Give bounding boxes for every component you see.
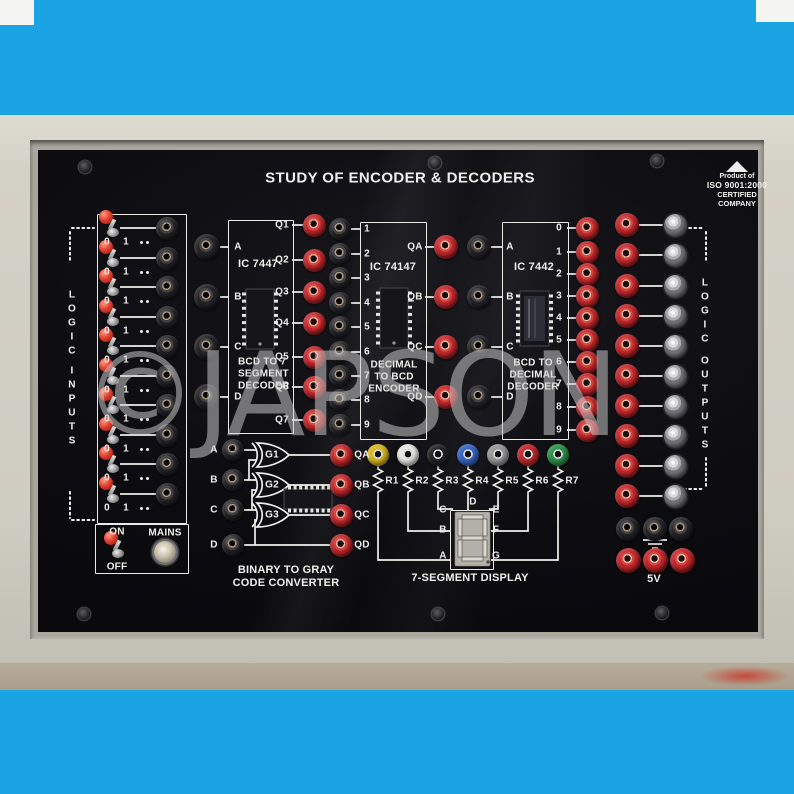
xor-gate-label: G2 — [265, 480, 279, 491]
ic74147-input-socket-3[interactable] — [329, 292, 351, 314]
logic-output-led-2 — [664, 275, 687, 298]
segment-label-f: F — [493, 525, 499, 536]
logic-input-toggle-9[interactable] — [99, 479, 125, 506]
power-toggle[interactable] — [104, 534, 130, 561]
panel-screw — [78, 608, 90, 620]
supply-5v-socket-1[interactable] — [643, 548, 668, 573]
ic7447-output-label: Q5 — [275, 352, 289, 363]
logic-outputs-label-letter: O — [701, 292, 709, 303]
ic7442-output-label: 9 — [556, 425, 562, 436]
logic-input-socket-9[interactable] — [156, 483, 179, 506]
ic7447-input-socket-1[interactable] — [194, 284, 220, 310]
logic-input-toggle-2[interactable] — [99, 272, 125, 299]
display-box — [450, 510, 494, 570]
xor-gate-label: G1 — [265, 450, 279, 461]
logic-input-toggle-0[interactable] — [99, 213, 125, 240]
ic7442-output-socket-3[interactable] — [576, 285, 599, 308]
logic-input-toggle-7[interactable] — [99, 420, 125, 447]
switch-zero-label: 0 — [104, 296, 110, 307]
supply-5v-socket-0[interactable] — [616, 548, 641, 573]
logic-outputs-label-letter: I — [704, 320, 707, 331]
logic-output-led-5 — [664, 365, 687, 388]
logic-outputs-label-letter: C — [701, 334, 708, 345]
ic7442-output-socket-1[interactable] — [576, 241, 599, 264]
logic-input-toggle-6[interactable] — [99, 390, 125, 417]
ic7442-input-label: A — [506, 242, 513, 253]
switch-one-label: 1 — [123, 355, 129, 366]
logic-output-socket-6[interactable] — [615, 394, 639, 418]
panel-screw — [656, 607, 668, 619]
logic-inputs-label-letter: L — [69, 290, 75, 301]
ic7442-output-label: 0 — [556, 223, 562, 234]
switch-zero-label: 0 — [104, 237, 110, 248]
logic-input-socket-8[interactable] — [156, 453, 179, 476]
photo-corner — [756, 0, 794, 22]
ic7442-input-socket-1[interactable] — [467, 285, 491, 309]
switch-zero-label: 0 — [104, 385, 110, 396]
ic74147-output-label: QC — [407, 342, 422, 353]
ic7447-output-label: Q6 — [275, 382, 289, 393]
binary-gray-input-label: B — [210, 475, 217, 486]
binary-gray-output-socket-1[interactable] — [330, 474, 353, 497]
switch-zero-label: 0 — [104, 414, 110, 425]
ic7442-output-label: 4 — [556, 313, 562, 324]
logic-input-socket-0[interactable] — [156, 217, 179, 240]
power-on-label: ON — [109, 527, 124, 538]
ic7442-input-socket-3[interactable] — [467, 385, 491, 409]
ic7447-input-socket-3[interactable] — [194, 384, 220, 410]
ic7442-output-socket-2[interactable] — [576, 263, 599, 286]
marker-dot — [140, 477, 143, 480]
logic-output-socket-3[interactable] — [615, 304, 639, 328]
badge-line2: ISO 9001:2000 — [700, 180, 774, 190]
ic74147-desc-1: DECIMAL — [371, 360, 418, 371]
segment-label-e: E — [493, 505, 500, 516]
marker-dot — [146, 271, 149, 274]
logic-input-toggle-5[interactable] — [99, 361, 125, 388]
marker-dot — [140, 418, 143, 421]
logic-outputs-label-letter: P — [702, 398, 709, 409]
resistor-label: R5 — [505, 476, 518, 487]
ic7447-output-label: Q2 — [275, 255, 289, 266]
logic-inputs-label-letter: T — [69, 422, 75, 433]
logic-outputs-label-letter: O — [701, 356, 709, 367]
logic-input-socket-2[interactable] — [156, 276, 179, 299]
badge-line1: Product of — [700, 173, 774, 180]
ic74147-input-socket-8[interactable] — [329, 414, 351, 436]
switch-zero-label: 0 — [104, 444, 110, 455]
ic7442-input-label: B — [506, 292, 513, 303]
logic-output-socket-1[interactable] — [615, 243, 639, 267]
marker-dot — [140, 507, 143, 510]
segment-label-c: C — [439, 505, 446, 516]
ic7442-output-socket-9[interactable] — [576, 419, 599, 442]
ic7447-input-label: C — [234, 342, 241, 353]
ic7447-input-label: B — [234, 292, 241, 303]
binary-gray-output-label: QB — [354, 480, 369, 491]
segment-label-d: D — [469, 497, 476, 508]
ic7442-output-label: 7 — [556, 379, 562, 390]
ic7442-output-label: 8 — [556, 402, 562, 413]
logic-outputs-label-letter: U — [701, 370, 708, 381]
mains-indicator — [154, 541, 176, 563]
logic-inputs-label-letter: I — [71, 366, 74, 377]
ic74147-input-label: 5 — [364, 322, 370, 333]
logic-output-led-6 — [664, 395, 687, 418]
supply-5v-label: 5V — [647, 573, 661, 585]
background-reflection — [700, 666, 790, 686]
binary-gray-input-socket-1[interactable] — [222, 469, 244, 491]
logic-inputs-label-letter: I — [71, 332, 74, 343]
ic7442-output-label: 1 — [556, 247, 562, 258]
ic7442-output-socket-8[interactable] — [576, 396, 599, 419]
logic-inputs-label-letter: N — [68, 380, 75, 391]
binary-gray-input-label: A — [210, 445, 217, 456]
ic74147-input-socket-5[interactable] — [329, 341, 351, 363]
ic74147-input-label: 8 — [364, 395, 370, 406]
ic7442-input-label: D — [506, 392, 513, 403]
logic-inputs-label-letter: O — [68, 304, 76, 315]
segment-label-b: B — [439, 525, 446, 536]
ic7447-output-socket-0[interactable] — [303, 214, 326, 237]
ic7442-output-label: 5 — [556, 335, 562, 346]
ic7442-desc-1: BCD TO — [513, 358, 552, 369]
binary-gray-output-label: QC — [354, 510, 369, 521]
switch-one-label: 1 — [123, 503, 129, 514]
ic7442-output-socket-7[interactable] — [576, 373, 599, 396]
switch-one-label: 1 — [123, 237, 129, 248]
marker-dot — [140, 389, 143, 392]
logic-outputs-label-letter: T — [702, 426, 708, 437]
ic74147-output-label: QD — [407, 392, 422, 403]
binary-gray-output-label: QA — [354, 450, 369, 461]
logic-outputs-label-letter: S — [702, 440, 709, 451]
binary-gray-title-2: CODE CONVERTER — [233, 577, 340, 589]
resistor-label: R3 — [445, 476, 458, 487]
photo-corner — [0, 0, 34, 25]
logic-output-led-8 — [664, 455, 687, 478]
ic7447-output-socket-3[interactable] — [303, 312, 326, 335]
ic7447-output-label: Q4 — [275, 318, 289, 329]
ic74147-desc-2: TO BCD — [374, 372, 413, 383]
trainer-board-photo: STUDY OF ENCODER & DECODERS Product of I… — [0, 0, 794, 794]
ic7442-output-label: 2 — [556, 269, 562, 280]
panel-screw — [79, 161, 91, 173]
mains-label: MAINS — [148, 528, 181, 539]
page-title: STUDY OF ENCODER & DECODERS — [265, 170, 535, 187]
marker-dot — [146, 418, 149, 421]
logic-outputs-label-letter: T — [702, 384, 708, 395]
logic-output-socket-7[interactable] — [615, 424, 639, 448]
ic74147-input-label: 6 — [364, 347, 370, 358]
seg-socket-R5[interactable] — [487, 444, 509, 466]
ic74147-input-socket-6[interactable] — [329, 365, 351, 387]
ic7442-desc-3: DECODER — [507, 382, 558, 393]
marker-dot — [146, 300, 149, 303]
logic-input-toggle-1[interactable] — [99, 243, 125, 270]
ic7442-output-label: 6 — [556, 357, 562, 368]
binary-gray-input-label: C — [210, 505, 217, 516]
logic-outputs-label-letter: L — [702, 278, 708, 289]
ic74147-name: IC 74147 — [370, 261, 416, 273]
resistor-label: R4 — [475, 476, 488, 487]
ic7442-output-socket-0[interactable] — [576, 217, 599, 240]
marker-dot — [140, 241, 143, 244]
ic74147-output-label: QB — [407, 292, 422, 303]
ic74147-input-label: 4 — [364, 298, 370, 309]
logic-input-socket-5[interactable] — [156, 365, 179, 388]
logic-inputs-label-letter: U — [68, 408, 75, 419]
ic7447-input-socket-2[interactable] — [194, 334, 220, 360]
resistor-label: R1 — [385, 476, 398, 487]
logic-output-socket-5[interactable] — [615, 364, 639, 388]
binary-gray-output-socket-3[interactable] — [330, 534, 353, 557]
logic-input-toggle-8[interactable] — [99, 449, 125, 476]
marker-dot — [146, 359, 149, 362]
ic7447-output-socket-6[interactable] — [303, 409, 326, 432]
iso-badge: Product of ISO 9001:2000 CERTIFIED COMPA… — [700, 161, 774, 208]
toggle-ball — [99, 210, 113, 224]
marker-dot — [140, 359, 143, 362]
marker-dot — [140, 271, 143, 274]
logic-output-led-7 — [664, 425, 687, 448]
ic74147-input-label: 3 — [364, 273, 370, 284]
ic74147-input-label: 9 — [364, 420, 370, 431]
ic74147-output-socket-0[interactable] — [434, 235, 458, 259]
logic-inputs-label-letter: P — [69, 394, 76, 405]
binary-gray-output-socket-2[interactable] — [330, 504, 353, 527]
ic7442-input-socket-0[interactable] — [467, 235, 491, 259]
ic74147-input-label: 2 — [364, 249, 370, 260]
switch-one-label: 1 — [123, 473, 129, 484]
logic-output-socket-4[interactable] — [615, 334, 639, 358]
logic-input-socket-4[interactable] — [156, 335, 179, 358]
ic74147-input-label: 1 — [364, 224, 370, 235]
ic7447-output-socket-2[interactable] — [303, 281, 326, 304]
logic-output-socket-0[interactable] — [615, 213, 639, 237]
marker-dot — [146, 389, 149, 392]
table-surface — [0, 663, 794, 690]
switch-one-label: 1 — [123, 267, 129, 278]
seg-socket-R1[interactable] — [367, 444, 389, 466]
switch-one-label: 1 — [123, 385, 129, 396]
ic7442-output-socket-6[interactable] — [576, 351, 599, 374]
binary-gray-input-socket-3[interactable] — [222, 534, 244, 556]
ic74147-input-label: 7 — [364, 371, 370, 382]
marker-dot — [140, 330, 143, 333]
panel-screw — [432, 608, 444, 620]
ic7442-input-label: C — [506, 342, 513, 353]
badge-line3: CERTIFIED COMPANY — [700, 190, 774, 208]
marker-dot — [140, 448, 143, 451]
ic74147-input-socket-4[interactable] — [329, 316, 351, 338]
logic-inputs-label-letter: S — [69, 436, 76, 447]
marker-dot — [146, 477, 149, 480]
ground-socket-0[interactable] — [616, 517, 640, 541]
binary-gray-input-socket-2[interactable] — [222, 499, 244, 521]
seven-segment-title: 7-SEGMENT DISPLAY — [411, 572, 528, 584]
logic-input-toggle-4[interactable] — [99, 331, 125, 358]
ic7442-desc-2: DECIMAL — [510, 370, 557, 381]
resistor-label: R7 — [565, 476, 578, 487]
logic-input-socket-6[interactable] — [156, 394, 179, 417]
ic74147-output-socket-1[interactable] — [434, 285, 458, 309]
logic-input-socket-7[interactable] — [156, 424, 179, 447]
xor-gate-label: G3 — [265, 510, 279, 521]
binary-gray-title-1: BINARY TO GRAY — [238, 564, 334, 576]
ic7447-output-label: Q1 — [275, 220, 289, 231]
logic-output-led-1 — [664, 244, 687, 267]
ic7447-output-socket-5[interactable] — [303, 376, 326, 399]
logic-outputs-label-letter: G — [701, 306, 709, 317]
switch-one-label: 1 — [123, 414, 129, 425]
binary-gray-output-socket-0[interactable] — [330, 444, 353, 467]
ic7447-output-label: Q7 — [275, 415, 289, 426]
switch-zero-label: 0 — [104, 503, 110, 514]
ground-socket-2[interactable] — [669, 517, 693, 541]
marker-dot — [146, 241, 149, 244]
panel-screw — [651, 155, 663, 167]
seg-socket-R7[interactable] — [547, 444, 569, 466]
ic7447-input-label: D — [234, 392, 241, 403]
power-off-label: OFF — [107, 562, 128, 573]
logic-input-socket-1[interactable] — [156, 247, 179, 270]
marker-dot — [140, 300, 143, 303]
ic7447-input-label: A — [234, 242, 241, 253]
ic7442-output-socket-5[interactable] — [576, 329, 599, 352]
ic7442-input-socket-2[interactable] — [467, 335, 491, 359]
switch-zero-label: 0 — [104, 355, 110, 366]
switch-zero-label: 0 — [104, 473, 110, 484]
switch-zero-label: 0 — [104, 267, 110, 278]
marker-dot — [146, 448, 149, 451]
ic7447-input-socket-0[interactable] — [194, 234, 220, 260]
ground-socket-1[interactable] — [643, 517, 667, 541]
toggle-base — [112, 549, 124, 558]
logic-inputs-label-letter: C — [68, 346, 75, 357]
seg-socket-R2[interactable] — [397, 444, 419, 466]
seg-socket-R4[interactable] — [457, 444, 479, 466]
binary-gray-output-label: QD — [354, 540, 369, 551]
supply-5v-socket-2[interactable] — [670, 548, 695, 573]
segment-label-g: G — [492, 551, 500, 562]
logic-output-led-0 — [664, 214, 687, 237]
ic7447-output-label: Q3 — [275, 287, 289, 298]
binary-gray-input-label: D — [210, 540, 217, 551]
ic74147-input-socket-2[interactable] — [329, 267, 351, 289]
ic74147-input-socket-7[interactable] — [329, 389, 351, 411]
switch-one-label: 1 — [123, 296, 129, 307]
logic-input-toggle-3[interactable] — [99, 302, 125, 329]
logic-inputs-label-letter: G — [68, 318, 76, 329]
marker-dot — [146, 330, 149, 333]
switch-one-label: 1 — [123, 326, 129, 337]
logic-output-led-3 — [664, 305, 687, 328]
ic74147-output-label: QA — [407, 242, 422, 253]
logic-output-socket-9[interactable] — [615, 484, 639, 508]
switch-zero-label: 0 — [104, 326, 110, 337]
marker-dot — [146, 507, 149, 510]
logic-outputs-label-letter: U — [701, 412, 708, 423]
segment-label-a: A — [439, 551, 446, 562]
ic7442-name: IC 7442 — [514, 261, 554, 273]
logic-output-socket-2[interactable] — [615, 274, 639, 298]
logic-output-socket-8[interactable] — [615, 454, 639, 478]
switch-one-label: 1 — [123, 444, 129, 455]
ic74147-output-socket-2[interactable] — [434, 335, 458, 359]
resistor-label: R6 — [535, 476, 548, 487]
logic-input-socket-3[interactable] — [156, 306, 179, 329]
ic7442-output-socket-4[interactable] — [576, 307, 599, 330]
logic-output-led-4 — [664, 335, 687, 358]
ic74147-input-socket-1[interactable] — [329, 243, 351, 265]
binary-gray-input-socket-0[interactable] — [222, 439, 244, 461]
ic7447-name: IC 7447 — [238, 258, 278, 270]
ic7442-output-label: 3 — [556, 291, 562, 302]
ic7447-desc-2: SEGMENT — [238, 369, 289, 380]
ic7447-output-socket-1[interactable] — [303, 249, 326, 272]
seg-socket-R6[interactable] — [517, 444, 539, 466]
ic7447-output-socket-4[interactable] — [303, 346, 326, 369]
seg-socket-R3[interactable] — [427, 444, 449, 466]
brand-triangle-icon — [726, 161, 748, 172]
logic-output-led-9 — [664, 485, 687, 508]
ic74147-output-socket-3[interactable] — [434, 385, 458, 409]
resistor-label: R2 — [415, 476, 428, 487]
ic74147-input-socket-0[interactable] — [329, 218, 351, 240]
panel-screw — [429, 157, 441, 169]
